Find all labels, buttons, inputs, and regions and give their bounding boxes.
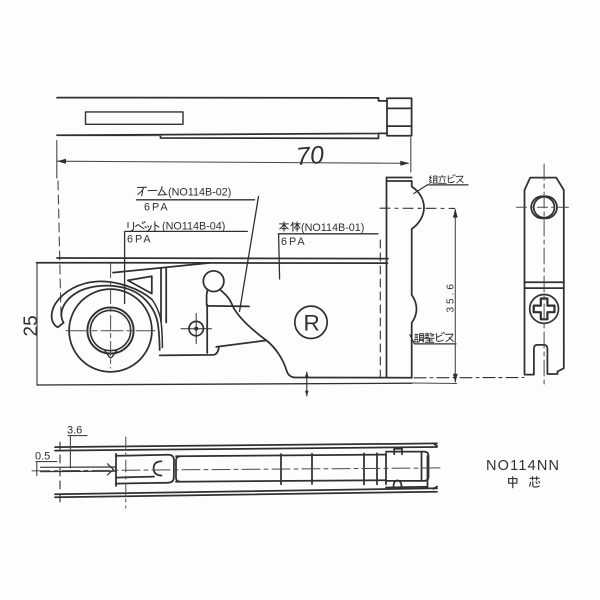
svg-text:3.6: 3.6 — [67, 425, 82, 437]
svg-text:NO114NN: NO114NN — [486, 458, 560, 474]
svg-text:R: R — [304, 311, 320, 336]
svg-text:25: 25 — [21, 315, 42, 336]
svg-text:(NO114B-04): (NO114B-04) — [162, 221, 225, 233]
svg-text:35.6: 35.6 — [446, 281, 457, 312]
svg-text:(NO114B-01): (NO114B-01) — [301, 222, 364, 234]
svg-text:70: 70 — [295, 141, 325, 171]
svg-text:6PA: 6PA — [127, 234, 153, 246]
svg-text:6PA: 6PA — [144, 202, 170, 214]
svg-text:0.5: 0.5 — [35, 451, 50, 463]
svg-text:6PA: 6PA — [281, 236, 307, 248]
svg-text:(NO114B-02): (NO114B-02) — [168, 187, 231, 199]
